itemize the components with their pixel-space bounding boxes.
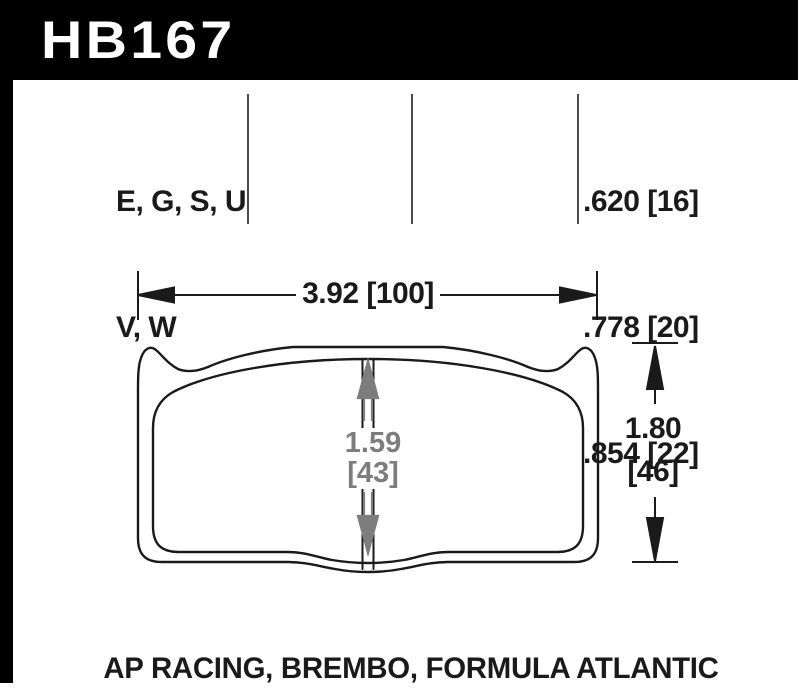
center-arrowhead-down xyxy=(358,516,378,553)
center-arrowhead-up xyxy=(358,361,378,398)
center-height-label-mm: [43] xyxy=(330,458,416,489)
header-bar: HB167 xyxy=(0,0,798,80)
compound-codes-line1: E, G, S, U xyxy=(116,181,246,223)
column-divider-1 xyxy=(247,94,249,224)
height-dimension-label-inches: 1.80 xyxy=(603,413,703,445)
height-dimension-label-mm: [46] xyxy=(603,456,703,488)
spec-sheet: HB167 E, G, S, U V, W .620 [16] .778 [20… xyxy=(0,0,800,691)
compound-codes-line2: V, W xyxy=(116,307,246,349)
thickness-option: .778 [20] xyxy=(583,307,699,349)
center-height-label-inches: 1.59 xyxy=(330,428,416,459)
part-number: HB167 xyxy=(0,10,235,71)
compound-codes: E, G, S, U V, W xyxy=(116,97,246,433)
column-divider-3 xyxy=(577,94,579,224)
left-border-bar xyxy=(0,0,13,683)
width-dimension-label: 3.92 [100] xyxy=(248,278,488,310)
applications-caption: AP RACING, BREMBO, FORMULA ATLANTIC xyxy=(30,652,792,686)
thickness-options: .620 [16] .778 [20] .854 [22] xyxy=(583,97,699,559)
thickness-option: .620 [16] xyxy=(583,181,699,223)
column-divider-2 xyxy=(411,94,413,224)
